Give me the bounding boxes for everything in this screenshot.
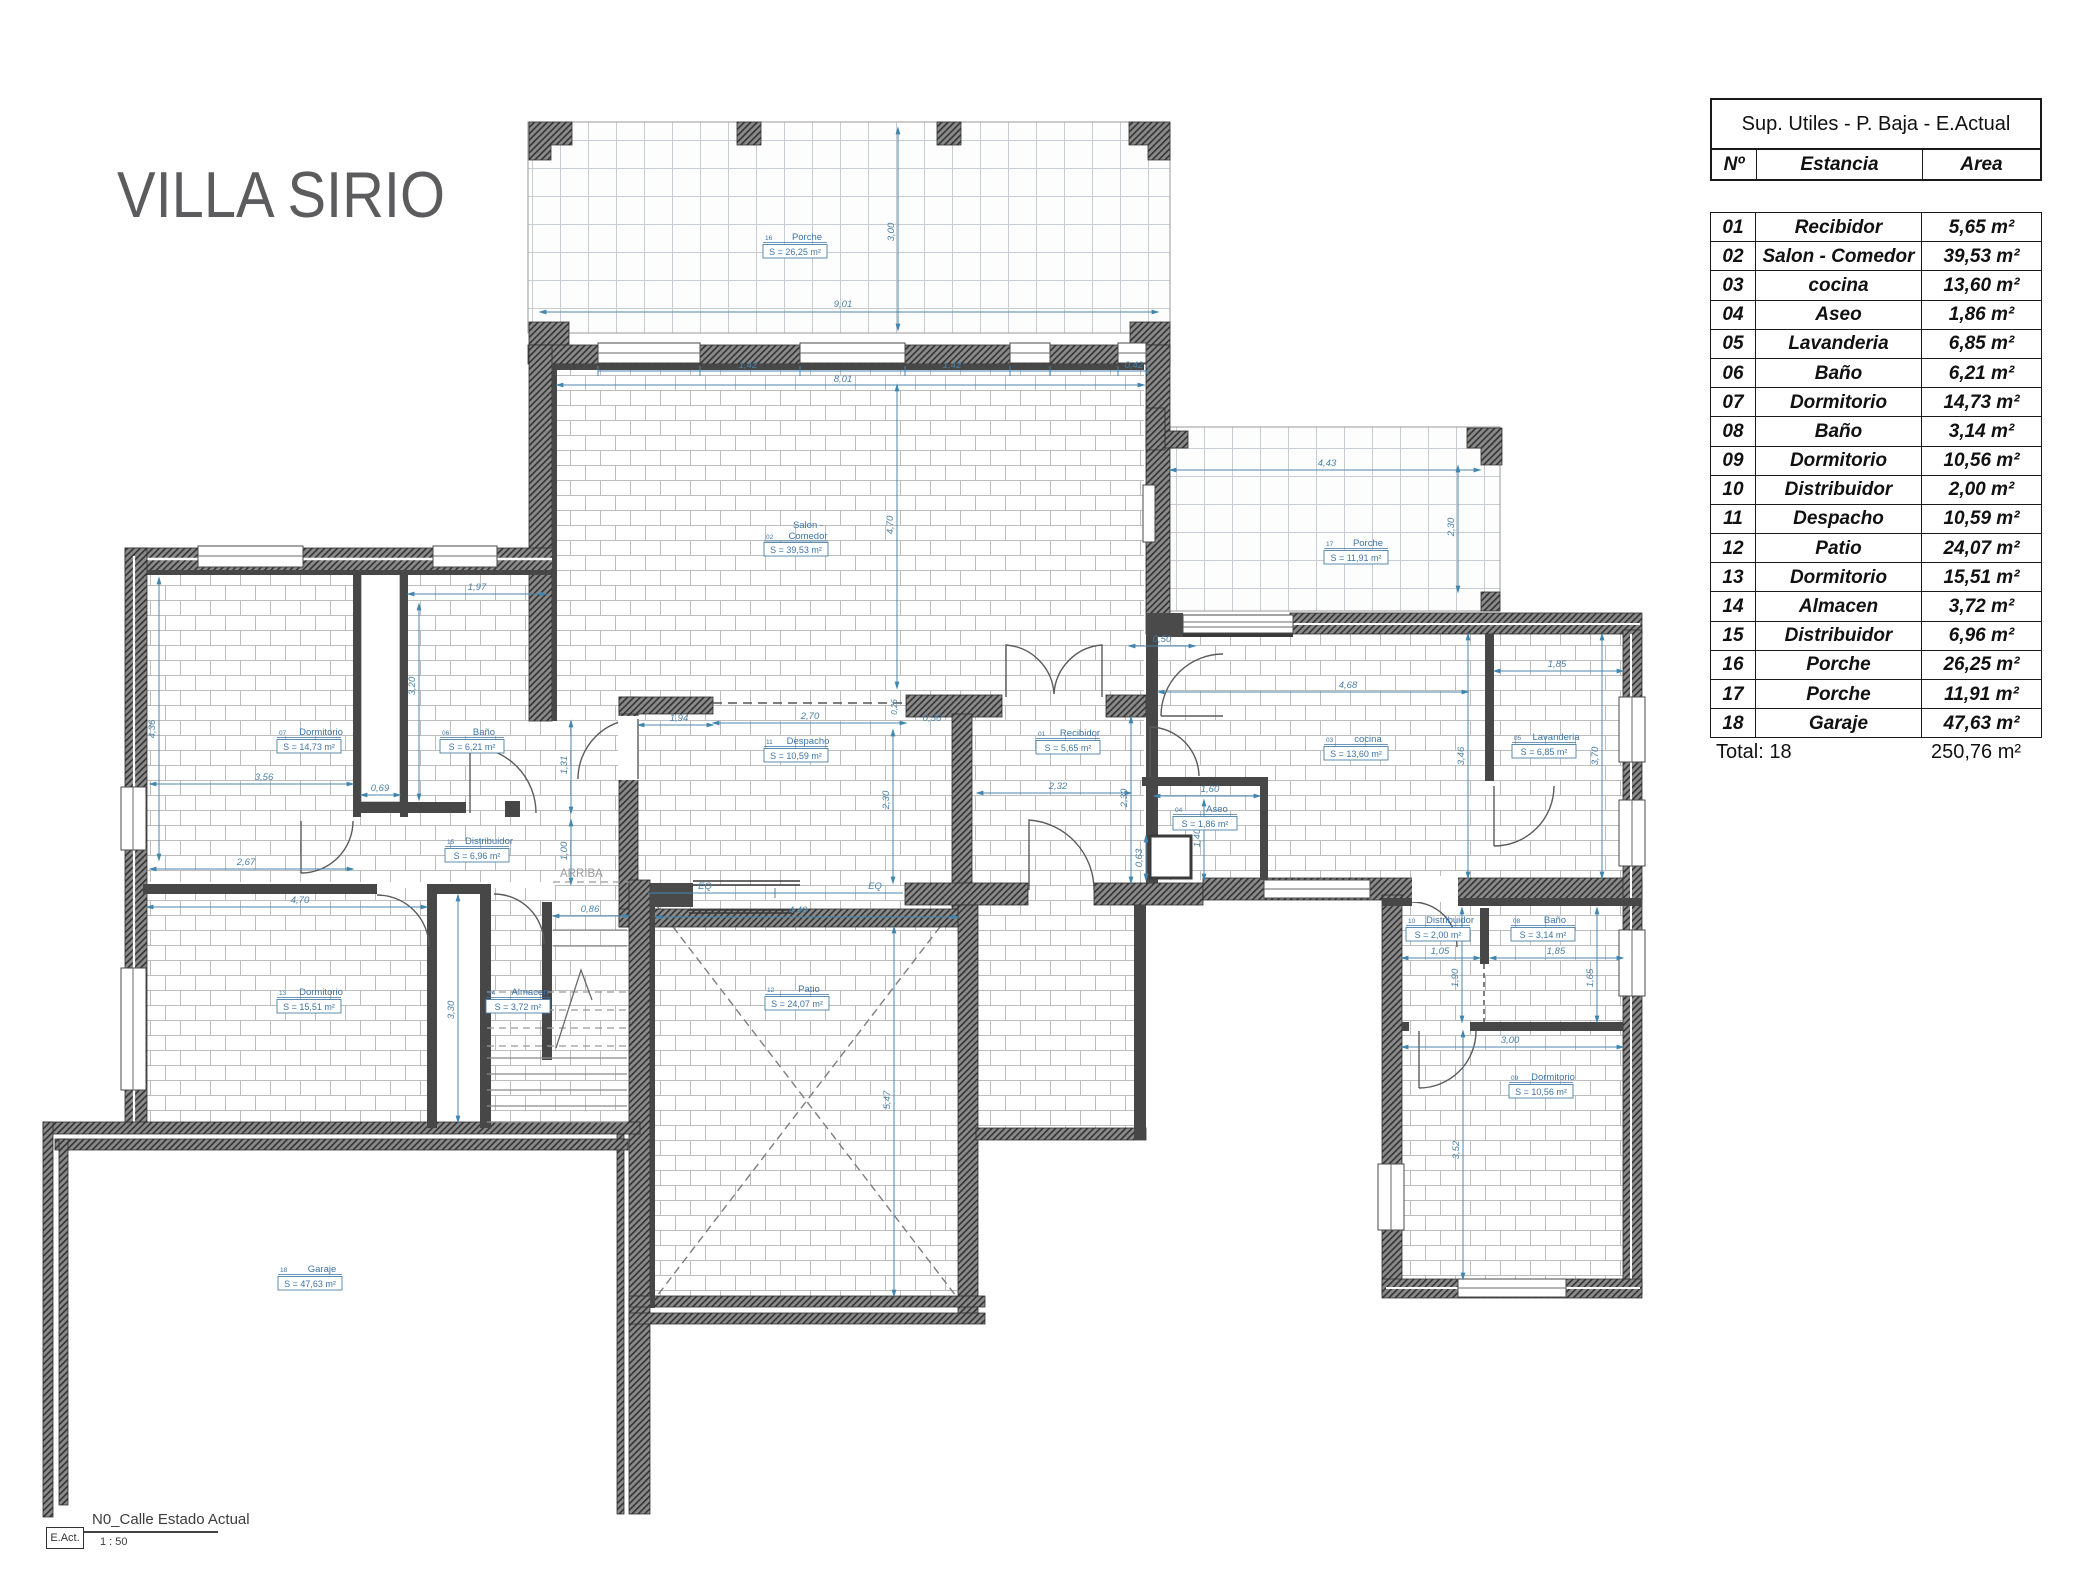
svg-text:S = 39,53 m²: S = 39,53 m² bbox=[770, 545, 822, 555]
svg-text:Dormitorio: Dormitorio bbox=[299, 727, 343, 738]
svg-text:Porche: Porche bbox=[1353, 538, 1383, 549]
svg-text:10: 10 bbox=[1408, 918, 1416, 925]
svg-text:S = 6,21 m²: S = 6,21 m² bbox=[449, 742, 496, 752]
svg-text:1,00: 1,00 bbox=[559, 841, 570, 860]
svg-text:0,86: 0,86 bbox=[581, 904, 600, 915]
svg-text:Aseo: Aseo bbox=[1206, 804, 1228, 815]
svg-text:S = 11,91 m²: S = 11,91 m² bbox=[1330, 553, 1381, 563]
svg-text:S = 47,63 m²: S = 47,63 m² bbox=[284, 1279, 336, 1289]
svg-text:16: 16 bbox=[765, 235, 773, 242]
svg-text:4,68: 4,68 bbox=[1339, 680, 1358, 691]
svg-text:1,65: 1,65 bbox=[1585, 968, 1596, 987]
svg-text:1,97: 1,97 bbox=[468, 582, 487, 593]
svg-text:1,94: 1,94 bbox=[670, 713, 689, 724]
svg-text:Patio: Patio bbox=[798, 984, 820, 995]
svg-text:Baño: Baño bbox=[1544, 915, 1566, 926]
svg-text:Salon -: Salon - bbox=[793, 520, 823, 531]
svg-text:2,30: 2,30 bbox=[881, 790, 892, 810]
svg-text:4,36: 4,36 bbox=[147, 719, 158, 738]
svg-text:0,69: 0,69 bbox=[371, 783, 390, 794]
svg-text:S = 1,86 m²: S = 1,86 m² bbox=[1182, 819, 1229, 829]
svg-text:EQ: EQ bbox=[868, 881, 882, 892]
svg-text:4,70: 4,70 bbox=[291, 895, 310, 906]
svg-text:3,52: 3,52 bbox=[1451, 1140, 1462, 1159]
svg-text:03: 03 bbox=[1326, 737, 1334, 744]
svg-text:1,85: 1,85 bbox=[1548, 659, 1567, 670]
svg-text:06: 06 bbox=[442, 730, 450, 737]
svg-text:05: 05 bbox=[1514, 735, 1522, 742]
svg-text:4,70: 4,70 bbox=[885, 515, 896, 534]
svg-text:0,50: 0,50 bbox=[1153, 634, 1172, 645]
svg-text:1,85: 1,85 bbox=[1547, 946, 1566, 957]
svg-text:Dormitorio: Dormitorio bbox=[299, 987, 343, 998]
svg-text:0,63: 0,63 bbox=[1134, 848, 1145, 867]
svg-text:02: 02 bbox=[766, 534, 774, 541]
svg-text:S = 26,25 m²: S = 26,25 m² bbox=[769, 247, 821, 257]
svg-text:11: 11 bbox=[766, 739, 773, 746]
svg-text:1,31: 1,31 bbox=[559, 756, 570, 775]
svg-text:0,26: 0,26 bbox=[890, 699, 899, 715]
svg-text:1,42: 1,42 bbox=[943, 360, 962, 371]
svg-text:1,60: 1,60 bbox=[1201, 784, 1220, 795]
svg-text:2,32: 2,32 bbox=[1048, 781, 1068, 792]
svg-text:EQ: EQ bbox=[698, 881, 712, 892]
svg-text:09: 09 bbox=[1511, 1075, 1519, 1082]
svg-text:3,00: 3,00 bbox=[886, 222, 897, 241]
svg-text:3,70: 3,70 bbox=[1590, 746, 1601, 765]
svg-text:ARRIBA: ARRIBA bbox=[560, 868, 603, 880]
svg-text:12: 12 bbox=[767, 987, 775, 994]
svg-text:3,46: 3,46 bbox=[1456, 746, 1467, 765]
svg-text:Almacen: Almacen bbox=[512, 987, 549, 998]
svg-text:13: 13 bbox=[279, 990, 287, 997]
svg-text:S = 13,60 m²: S = 13,60 m² bbox=[1330, 749, 1382, 759]
svg-text:01: 01 bbox=[1038, 731, 1046, 738]
svg-text:5,47: 5,47 bbox=[882, 1090, 893, 1109]
svg-text:3,56: 3,56 bbox=[255, 772, 274, 783]
svg-text:07: 07 bbox=[279, 730, 287, 737]
svg-text:S = 10,59 m²: S = 10,59 m² bbox=[770, 751, 822, 761]
svg-text:3,30: 3,30 bbox=[446, 1000, 457, 1019]
svg-text:Garaje: Garaje bbox=[308, 1264, 337, 1275]
svg-text:1,40: 1,40 bbox=[1192, 828, 1203, 847]
svg-text:S = 3,72 m²: S = 3,72 m² bbox=[495, 1002, 542, 1012]
svg-text:0,42: 0,42 bbox=[1125, 360, 1144, 371]
svg-text:2,30: 2,30 bbox=[1119, 788, 1130, 808]
svg-text:S = 6,85 m²: S = 6,85 m² bbox=[1521, 747, 1568, 757]
svg-text:Porche: Porche bbox=[792, 232, 822, 243]
svg-text:S = 5,65 m²: S = 5,65 m² bbox=[1045, 743, 1092, 753]
svg-text:1,42: 1,42 bbox=[739, 360, 758, 371]
svg-text:17: 17 bbox=[1326, 541, 1334, 548]
svg-text:2,30: 2,30 bbox=[1446, 517, 1457, 537]
svg-text:S = 6,96 m²: S = 6,96 m² bbox=[454, 851, 501, 861]
svg-text:4,40: 4,40 bbox=[789, 905, 808, 916]
svg-text:Distribuidor: Distribuidor bbox=[1426, 915, 1474, 926]
svg-text:04: 04 bbox=[1175, 807, 1183, 814]
svg-text:S = 3,14 m²: S = 3,14 m² bbox=[1520, 930, 1567, 940]
svg-text:S = 14,73 m²: S = 14,73 m² bbox=[283, 742, 335, 752]
svg-text:08: 08 bbox=[1513, 918, 1521, 925]
svg-text:2,70: 2,70 bbox=[800, 711, 820, 722]
svg-text:4,43: 4,43 bbox=[1318, 458, 1337, 469]
svg-text:Despacho: Despacho bbox=[787, 736, 830, 747]
svg-text:1,05: 1,05 bbox=[1431, 946, 1450, 957]
svg-text:3,20: 3,20 bbox=[407, 676, 418, 695]
svg-text:8,01: 8,01 bbox=[834, 374, 853, 385]
svg-text:Lavanderia: Lavanderia bbox=[1532, 732, 1580, 743]
svg-text:S = 2,00 m²: S = 2,00 m² bbox=[1415, 930, 1462, 940]
svg-text:1,90: 1,90 bbox=[1450, 968, 1461, 987]
svg-text:9,01: 9,01 bbox=[834, 299, 853, 310]
svg-text:Recibidor: Recibidor bbox=[1060, 728, 1100, 739]
svg-text:S = 24,07 m²: S = 24,07 m² bbox=[771, 999, 823, 1009]
svg-text:18: 18 bbox=[280, 1267, 288, 1274]
svg-text:0,56: 0,56 bbox=[923, 713, 942, 724]
svg-text:S = 10,56 m²: S = 10,56 m² bbox=[1515, 1087, 1567, 1097]
svg-text:S = 15,51 m²: S = 15,51 m² bbox=[283, 1002, 335, 1012]
svg-text:3,00: 3,00 bbox=[1501, 1035, 1520, 1046]
svg-text:2,67: 2,67 bbox=[236, 857, 256, 868]
svg-text:Baño: Baño bbox=[473, 727, 495, 738]
svg-text:Dormitorio: Dormitorio bbox=[1531, 1072, 1575, 1083]
svg-text:15: 15 bbox=[447, 839, 455, 846]
svg-text:Distribuidor: Distribuidor bbox=[465, 836, 513, 847]
svg-text:Comedor: Comedor bbox=[788, 531, 827, 542]
svg-text:cocina: cocina bbox=[1354, 734, 1382, 745]
svg-text:14: 14 bbox=[488, 990, 496, 997]
